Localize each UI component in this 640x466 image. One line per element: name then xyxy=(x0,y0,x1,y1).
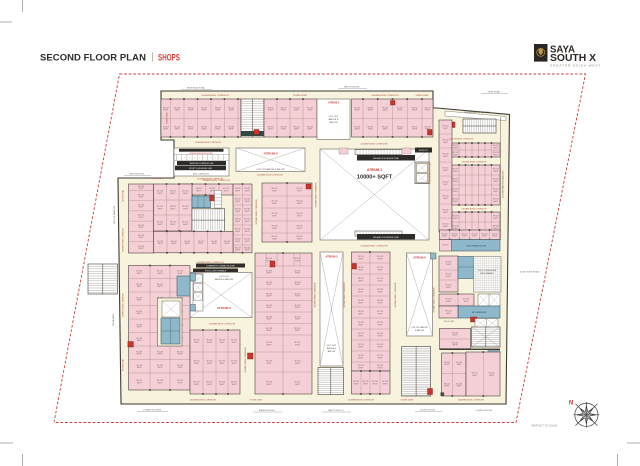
svg-text:PRE MID AIR LIFT LOBY: PRE MID AIR LIFT LOBY xyxy=(429,162,432,184)
svg-text:MAJRI HOSTEL: MAJRI HOSTEL xyxy=(259,409,276,412)
svg-text:*MAP NOT TO SCALE: *MAP NOT TO SCALE xyxy=(531,424,557,428)
svg-text:2400MM WIDE CORRIDOR: 2400MM WIDE CORRIDOR xyxy=(195,142,221,144)
svg-text:2400MM WIDE CORRIDOR: 2400MM WIDE CORRIDOR xyxy=(256,199,258,225)
svg-text:2100 MM SERVICE BALCONY: 2100 MM SERVICE BALCONY xyxy=(501,169,504,197)
svg-text:SHOP: SHOP xyxy=(445,385,451,387)
svg-text:T: T xyxy=(199,158,200,160)
svg-text:FOOD COURT TERRACE: FOOD COURT TERRACE xyxy=(205,269,227,272)
svg-text:2400MM WIDE CORRIDOR: 2400MM WIDE CORRIDOR xyxy=(190,399,216,401)
svg-text:SHOP: SHOP xyxy=(398,110,404,112)
svg-text:2400MM WIDE CORRIDOR: 2400MM WIDE CORRIDOR xyxy=(245,347,247,373)
svg-text:CUT OUT ABOVE & BELOW: CUT OUT ABOVE & BELOW xyxy=(256,168,285,171)
svg-text:30 MT WIDE ROAD: 30 MT WIDE ROAD xyxy=(520,271,540,274)
svg-text:BELOW: BELOW xyxy=(328,351,336,353)
svg-text:TRIVIA WALK: TRIVIA WALK xyxy=(112,313,115,326)
svg-text:HIGH HOSTEL: HIGH HOSTEL xyxy=(421,410,437,412)
svg-text:KIDS GAMING: KIDS GAMING xyxy=(480,272,494,275)
svg-text:2400MM WIDE CORRIDOR: 2400MM WIDE CORRIDOR xyxy=(257,175,283,177)
svg-text:90 MM SUNK: 90 MM SUNK xyxy=(250,399,263,401)
svg-text:SHOP: SHOP xyxy=(368,129,374,131)
svg-text:ABOVE & BELOW: ABOVE & BELOW xyxy=(215,278,234,281)
svg-text:LOWER HOSTEL: LOWER HOSTEL xyxy=(475,410,493,412)
svg-text:POLY CLUBHOUSE: POLY CLUBHOUSE xyxy=(478,270,497,272)
svg-text:2400MM WIDE CORRIDOR: 2400MM WIDE CORRIDOR xyxy=(209,324,235,326)
svg-text:2400MM WIDE CORRIDOR: 2400MM WIDE CORRIDOR xyxy=(461,209,487,211)
svg-text:COMMUNITY CONNECTS ZONE: COMMUNITY CONNECTS ZONE xyxy=(206,266,235,268)
svg-text:ATRIUM-6: ATRIUM-6 xyxy=(413,256,426,260)
svg-text:GREATER NOIDA WEST: GREATER NOIDA WEST xyxy=(550,63,601,67)
svg-text:90 MM SLINE: 90 MM SLINE xyxy=(293,95,307,97)
svg-text:T: T xyxy=(194,158,195,160)
svg-text:HASTI IN PLOT: HASTI IN PLOT xyxy=(328,409,344,412)
svg-text:2400MM WIDE CORRIDOR: 2400MM WIDE CORRIDOR xyxy=(434,287,436,313)
svg-text:2400MM WIDE CORRIDOR: 2400MM WIDE CORRIDOR xyxy=(344,282,346,308)
svg-text:MECH HOSTEL: MECH HOSTEL xyxy=(129,174,145,176)
svg-text:HIGH ROAD: HIGH ROAD xyxy=(488,91,501,94)
svg-text:T: T xyxy=(225,158,226,160)
svg-text:2400MM WIDE CORRIDOR: 2400MM WIDE CORRIDOR xyxy=(316,182,318,208)
svg-text:2400MM WIDE CORRIDOR: 2400MM WIDE CORRIDOR xyxy=(123,293,125,317)
svg-text:ATRIUM 4: ATRIUM 4 xyxy=(328,102,340,105)
svg-text:MID-AIR FOOD BRIDGE ZONE: MID-AIR FOOD BRIDGE ZONE xyxy=(373,236,399,239)
svg-text:90 MM SUNK: 90 MM SUNK xyxy=(401,399,414,401)
svg-text:DN-UP LIFT: DN-UP LIFT xyxy=(419,150,428,152)
svg-text:10000+ SQFT: 10000+ SQFT xyxy=(357,175,393,181)
svg-text:CUT OUT: CUT OUT xyxy=(219,276,229,278)
svg-text:T: T xyxy=(179,158,180,160)
svg-text:CUT OUT: CUT OUT xyxy=(329,116,339,118)
svg-text:2400MM WIDE CORRIDOR: 2400MM WIDE CORRIDOR xyxy=(197,179,223,181)
svg-text:90 MM SLINE: 90 MM SLINE xyxy=(123,358,125,371)
svg-text:30 MM SLINE: 30 MM SLINE xyxy=(123,189,125,202)
svg-text:2400MM WIDE CORRIDOR: 2400MM WIDE CORRIDOR xyxy=(348,399,374,401)
svg-text:SHOP: SHOP xyxy=(445,364,451,366)
svg-text:SPORT CLUB HOUSE LINE: SPORT CLUB HOUSE LINE xyxy=(189,168,213,170)
svg-text:T: T xyxy=(184,158,185,160)
svg-text:T: T xyxy=(220,158,221,160)
svg-text:STAIR SUNK: STAIR SUNK xyxy=(416,94,430,97)
svg-text:WE NO WAY: WE NO WAY xyxy=(444,320,455,323)
svg-text:SECOND FLOOR PLAN: SECOND FLOOR PLAN xyxy=(40,53,146,64)
svg-text:T: T xyxy=(215,158,216,160)
svg-text:SHOP: SHOP xyxy=(368,110,374,112)
svg-text:2400MM WIDE CORRIDOR: 2400MM WIDE CORRIDOR xyxy=(360,144,388,146)
svg-text:ATRIUM-5: ATRIUM-5 xyxy=(325,255,338,259)
svg-text:& BELOW: & BELOW xyxy=(415,330,424,332)
svg-text:MID SERVICES: MID SERVICES xyxy=(472,312,487,314)
svg-text:ATRIUM-2: ATRIUM-2 xyxy=(217,306,231,310)
svg-text:90 MM SLINE: 90 MM SLINE xyxy=(152,178,166,180)
svg-text:2400MM WIDE CORRIDOR: 2400MM WIDE CORRIDOR xyxy=(315,282,317,308)
svg-text:2400MM WIDE CORRIDOR: 2400MM WIDE CORRIDOR xyxy=(201,95,229,97)
svg-text:ATRIUM-4: ATRIUM-4 xyxy=(263,152,277,156)
svg-text:2100 MM SERVICE BALCONY: 2100 MM SERVICE BALCONY xyxy=(464,111,491,114)
svg-text:LOWER RD WIDE: LOWER RD WIDE xyxy=(143,410,162,412)
svg-text:2400MM WIDE CORRIDOR: 2400MM WIDE CORRIDOR xyxy=(395,282,397,308)
svg-text:VEHICLE RAMP DN: VEHICLE RAMP DN xyxy=(113,205,116,224)
svg-text:T: T xyxy=(210,158,211,160)
svg-text:CUT OUT ABOVE: CUT OUT ABOVE xyxy=(411,326,428,329)
svg-text:2100 MM WIDE CORRIDOR: 2100 MM WIDE CORRIDOR xyxy=(449,139,474,141)
svg-text:ELECTRICAL ROOM: ELECTRICAL ROOM xyxy=(466,245,485,248)
svg-text:AHU & SERVICES: AHU & SERVICES xyxy=(193,173,210,176)
svg-text:2400MM WIDE CORRIDOR: 2400MM WIDE CORRIDOR xyxy=(360,246,388,248)
svg-text:T: T xyxy=(205,158,206,160)
svg-text:N: N xyxy=(569,401,573,407)
svg-text:2400MM WIDE CORRIDOR: 2400MM WIDE CORRIDOR xyxy=(123,228,125,252)
svg-text:2400MM WIDE CORRIDOR: 2400MM WIDE CORRIDOR xyxy=(458,399,484,401)
svg-text:SHOP: SHOP xyxy=(398,129,404,131)
svg-text:MECH HOSTEL: MECH HOSTEL xyxy=(344,87,361,89)
svg-text:HIGH SIDE ROAD: HIGH SIDE ROAD xyxy=(187,87,206,90)
svg-text:BELOW: BELOW xyxy=(330,122,339,124)
svg-text:ABOVE &: ABOVE & xyxy=(327,347,337,350)
svg-text:2400MM WIDE CORRIDOR: 2400MM WIDE CORRIDOR xyxy=(461,162,487,164)
svg-text:MID-AIR FOOD BRIDGE ZONE: MID-AIR FOOD BRIDGE ZONE xyxy=(373,157,399,160)
svg-text:SERVICES CORRIDOR LINE: SERVICES CORRIDOR LINE xyxy=(190,163,215,165)
svg-text:ATRIUM-1: ATRIUM-1 xyxy=(367,168,382,172)
svg-text:CUT OUT: CUT OUT xyxy=(327,345,337,347)
svg-text:SF-1XX: SF-1XX xyxy=(443,245,450,247)
svg-text:2400MM WIDE CORRIDOR: 2400MM WIDE CORRIDOR xyxy=(371,95,399,97)
svg-text:T: T xyxy=(189,158,190,160)
svg-text:ABOVE &: ABOVE & xyxy=(329,118,339,121)
svg-text:STAIR SUNK: STAIR SUNK xyxy=(166,111,169,124)
svg-text:SHOPS: SHOPS xyxy=(158,53,180,64)
